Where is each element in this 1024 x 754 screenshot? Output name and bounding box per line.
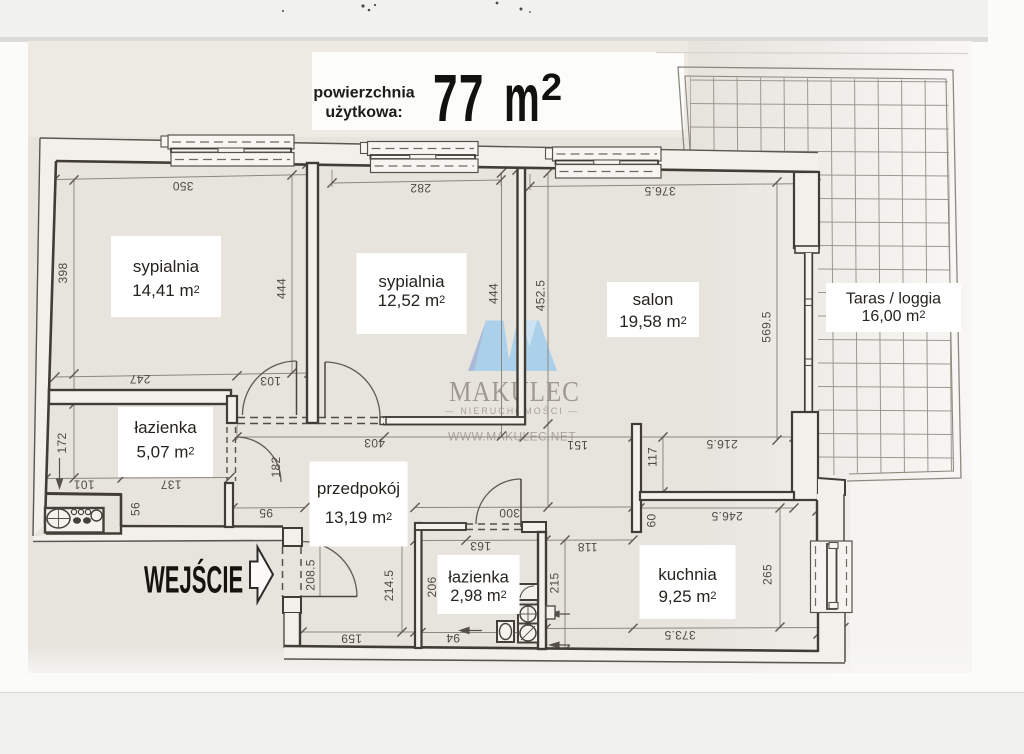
svg-text:350: 350: [173, 179, 194, 193]
svg-text:208.5: 208.5: [304, 559, 318, 591]
svg-text:2: 2: [541, 67, 562, 109]
svg-text:19,58 m2: 19,58 m2: [619, 312, 687, 331]
svg-text:137: 137: [161, 478, 182, 492]
svg-text:16,00 m2: 16,00 m2: [862, 308, 926, 325]
svg-text:376.5: 376.5: [644, 184, 676, 198]
svg-text:łazienka: łazienka: [448, 569, 509, 587]
svg-text:WEJŚCIE: WEJŚCIE: [144, 557, 243, 601]
svg-text:398: 398: [56, 263, 70, 284]
svg-text:452.5: 452.5: [534, 280, 548, 312]
svg-text:5,07 m2: 5,07 m2: [136, 443, 194, 462]
svg-text:13,19 m2: 13,19 m2: [325, 508, 393, 527]
svg-text:300: 300: [499, 506, 520, 520]
svg-text:salon: salon: [633, 290, 674, 309]
svg-text:103: 103: [260, 374, 281, 388]
svg-text:— NIERUCHOMOŚCI —: — NIERUCHOMOŚCI —: [445, 405, 580, 416]
svg-text:94: 94: [446, 631, 460, 645]
svg-text:przedpokój: przedpokój: [317, 479, 400, 498]
svg-text:56: 56: [129, 502, 143, 516]
svg-text:sypialnia: sypialnia: [378, 272, 445, 291]
svg-text:sypialnia: sypialnia: [133, 257, 200, 276]
svg-text:444: 444: [275, 278, 289, 299]
svg-text:MAKULEC: MAKULEC: [449, 375, 580, 407]
svg-text:kuchnia: kuchnia: [658, 565, 717, 584]
svg-text:206: 206: [425, 577, 439, 598]
svg-text:łazienka: łazienka: [134, 418, 197, 437]
svg-text:60: 60: [645, 514, 659, 528]
svg-text:265: 265: [761, 564, 775, 585]
svg-text:163: 163: [470, 539, 491, 553]
svg-text:powierzchnia: powierzchnia: [313, 85, 414, 102]
svg-text:117: 117: [646, 447, 660, 467]
svg-text:9,25 m2: 9,25 m2: [658, 587, 716, 606]
svg-text:118: 118: [577, 540, 597, 554]
svg-text:214.5: 214.5: [382, 570, 396, 602]
svg-text:2,98 m2: 2,98 m2: [450, 587, 507, 605]
svg-text:77: 77: [433, 62, 485, 136]
svg-text:216.5: 216.5: [706, 437, 738, 451]
svg-text:m: m: [504, 60, 540, 135]
svg-text:95: 95: [259, 506, 273, 520]
svg-text:Taras / loggia: Taras / loggia: [846, 291, 941, 308]
svg-text:172: 172: [55, 433, 69, 454]
svg-text:246.5: 246.5: [711, 509, 743, 523]
svg-text:247: 247: [130, 372, 151, 386]
svg-text:151: 151: [567, 438, 588, 452]
svg-text:101: 101: [74, 478, 95, 492]
svg-text:14,41 m2: 14,41 m2: [132, 281, 200, 300]
svg-text:444: 444: [487, 283, 501, 304]
svg-text:użytkowa:: użytkowa:: [325, 104, 402, 121]
svg-text:569.5: 569.5: [760, 311, 774, 343]
svg-text:282: 282: [410, 181, 431, 195]
svg-text:215: 215: [548, 573, 562, 594]
svg-text:403: 403: [364, 436, 385, 450]
svg-text:159: 159: [341, 632, 362, 646]
svg-text:182: 182: [269, 457, 283, 478]
svg-text:12,52 m2: 12,52 m2: [378, 291, 446, 310]
svg-text:373.5: 373.5: [664, 628, 696, 642]
